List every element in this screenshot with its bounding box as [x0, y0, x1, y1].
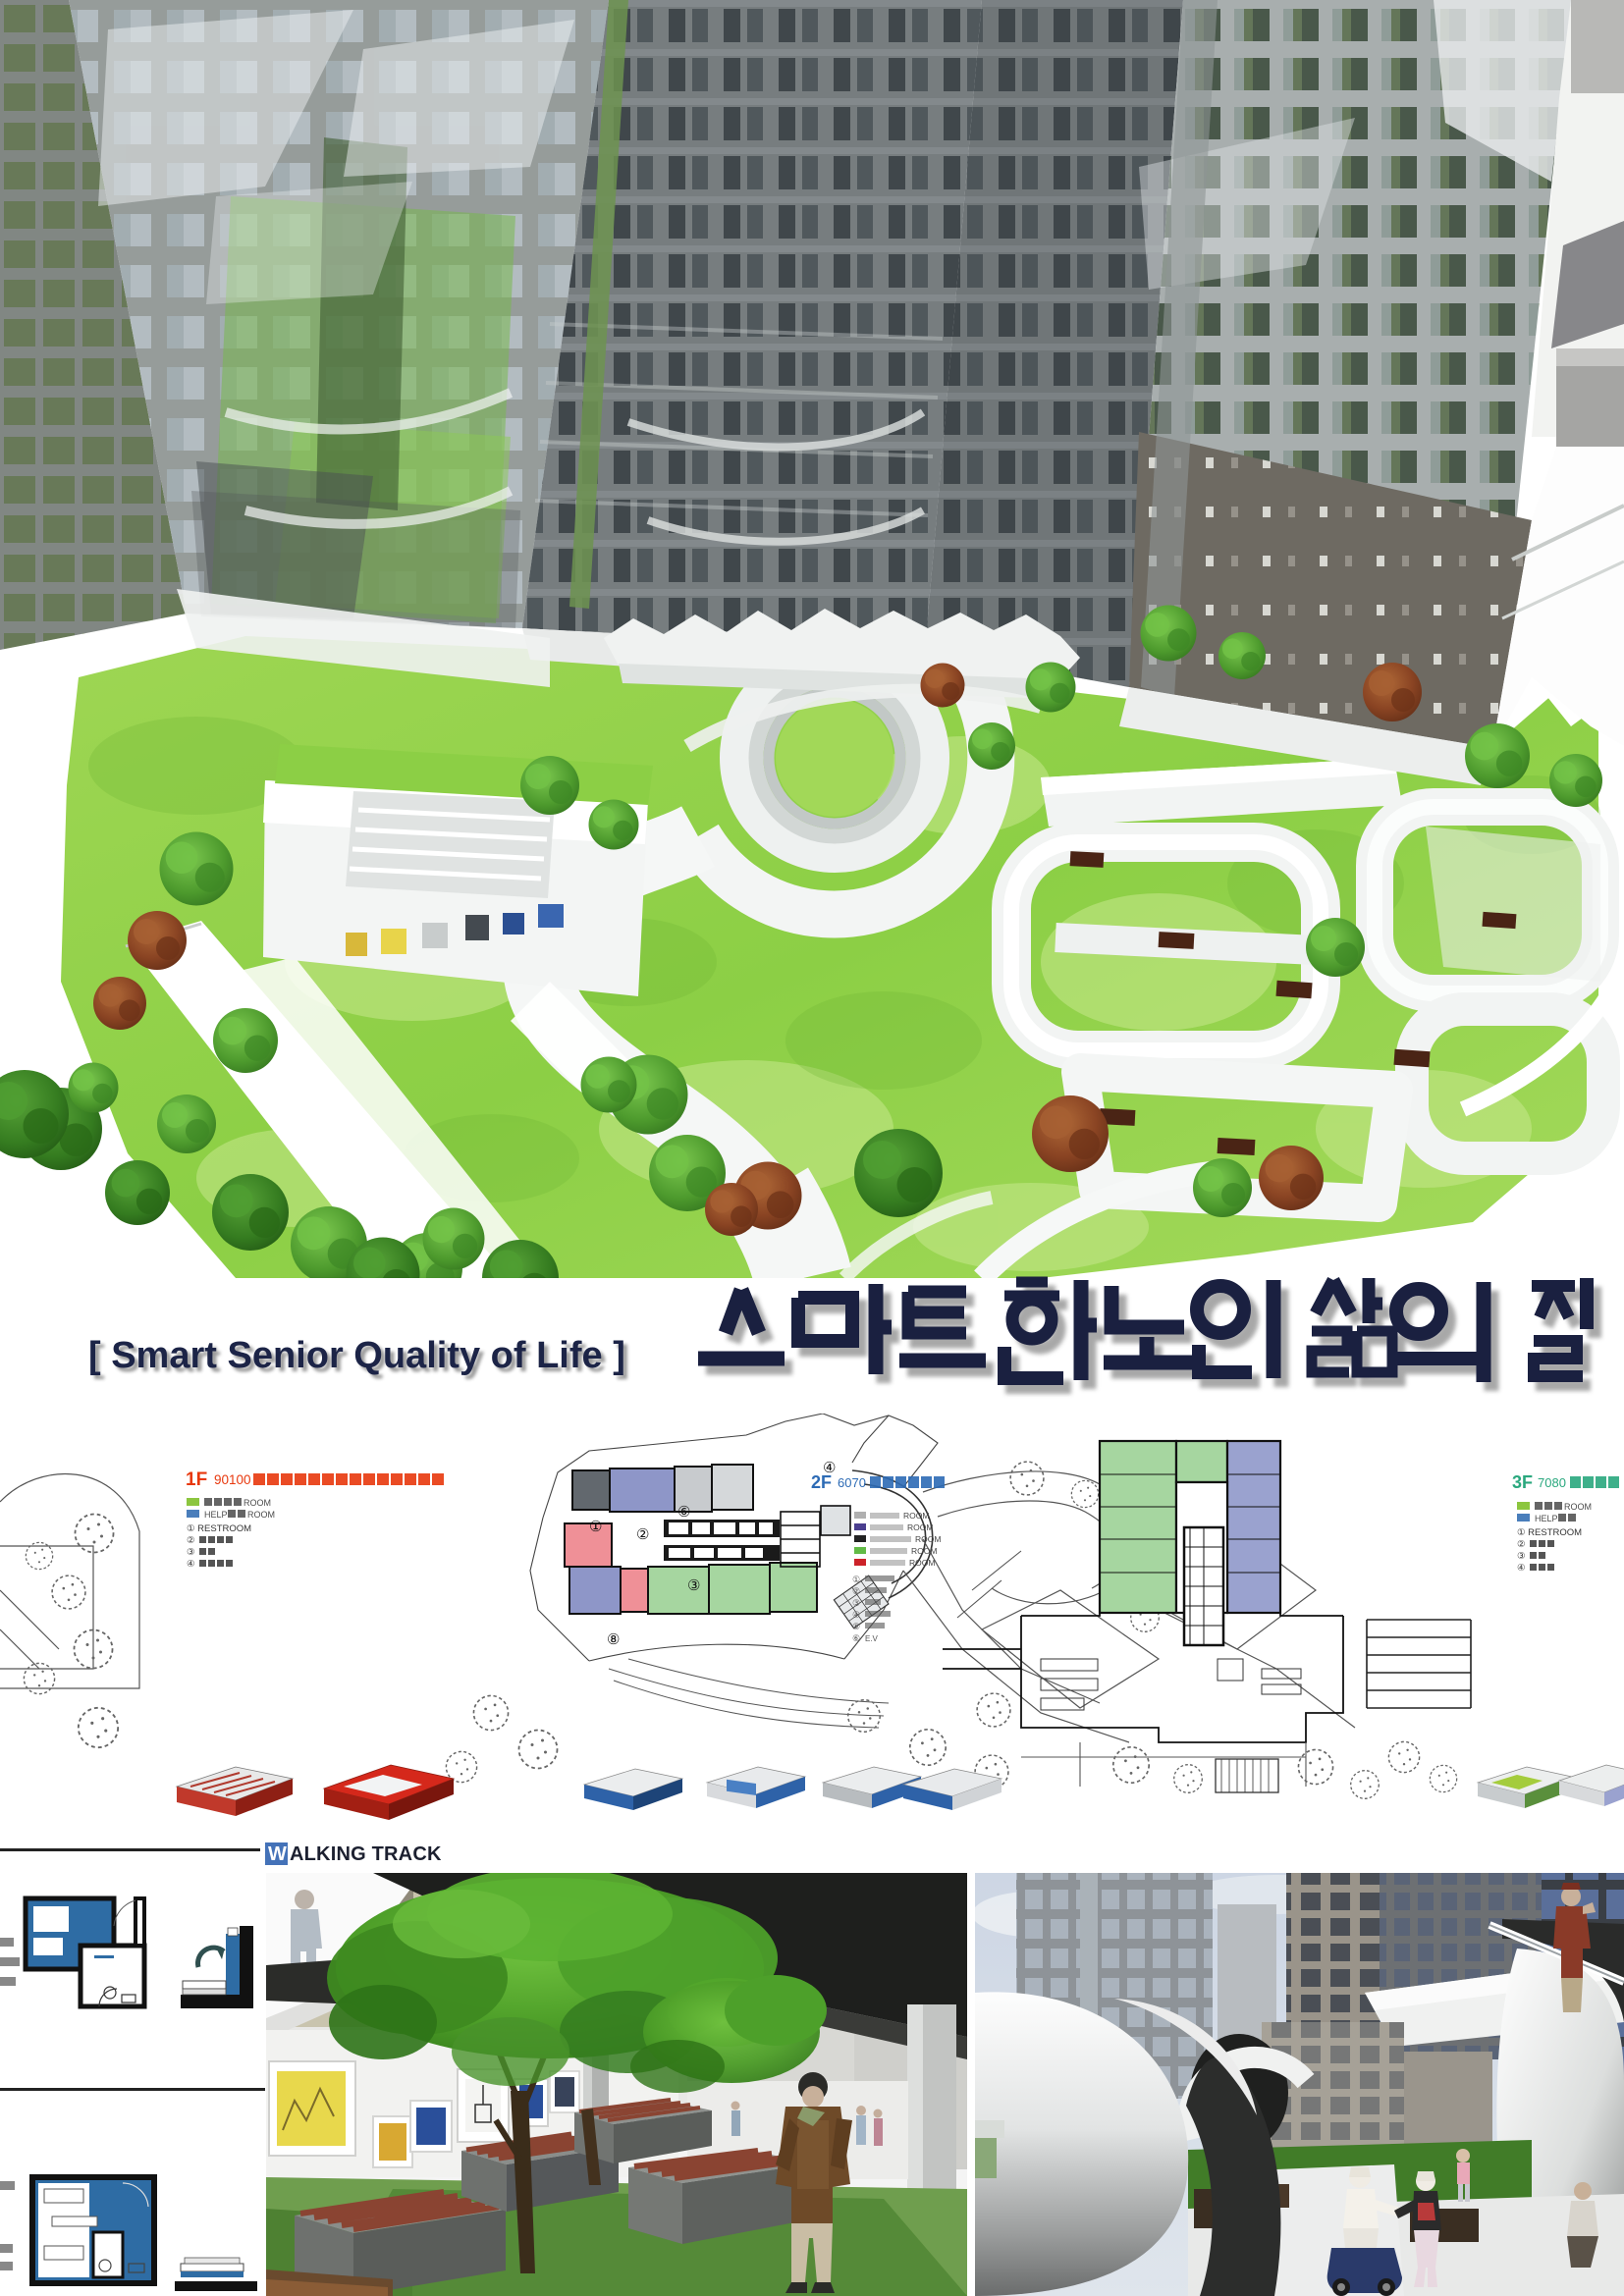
svg-text:① RESTROOM: ① RESTROOM — [1517, 1527, 1582, 1538]
svg-text:6070: 6070 — [838, 1475, 866, 1490]
svg-text:HELP: HELP — [1535, 1514, 1558, 1523]
svg-text:⑤: ⑤ — [852, 1622, 860, 1631]
svg-text:③: ③ — [852, 1598, 860, 1608]
svg-text:③: ③ — [187, 1547, 195, 1558]
svg-text:3F: 3F — [1512, 1472, 1533, 1492]
svg-text:①: ① — [852, 1575, 860, 1584]
svg-text:HELP: HELP — [204, 1510, 228, 1520]
svg-text:ALKING TRACK: ALKING TRACK — [290, 1843, 442, 1865]
svg-text:ROOM: ROOM — [244, 1498, 271, 1508]
svg-text:⑧: ⑧ — [607, 1631, 620, 1648]
svg-text:④: ④ — [1517, 1563, 1526, 1574]
svg-text:②: ② — [636, 1526, 649, 1543]
svg-text:7080: 7080 — [1538, 1475, 1566, 1490]
svg-text:②: ② — [852, 1586, 860, 1596]
svg-text:ROOM: ROOM — [903, 1511, 929, 1521]
svg-text:ROOM: ROOM — [1564, 1502, 1592, 1512]
svg-text:W: W — [268, 1843, 287, 1865]
svg-text:③: ③ — [1517, 1551, 1526, 1562]
svg-text:ROOM: ROOM — [907, 1522, 933, 1532]
svg-text:①: ① — [589, 1519, 602, 1535]
svg-text:③: ③ — [687, 1577, 700, 1594]
svg-text:⑥: ⑥ — [852, 1633, 860, 1643]
svg-text:ROOM: ROOM — [911, 1546, 937, 1556]
svg-text:ROOM: ROOM — [247, 1510, 275, 1520]
svg-text:②: ② — [1517, 1539, 1526, 1550]
svg-text:1F: 1F — [186, 1469, 207, 1490]
svg-text:②: ② — [187, 1535, 195, 1546]
svg-text:① RESTROOM: ① RESTROOM — [187, 1523, 251, 1534]
svg-text:2F: 2F — [811, 1472, 832, 1492]
svg-text:ROOM: ROOM — [909, 1558, 935, 1568]
svg-text:④: ④ — [187, 1559, 195, 1570]
svg-text:④: ④ — [852, 1610, 860, 1620]
svg-text:ROOM: ROOM — [915, 1534, 941, 1544]
svg-text:E.V: E.V — [865, 1634, 879, 1643]
svg-text:⑥: ⑥ — [677, 1504, 690, 1521]
svg-text:90100: 90100 — [214, 1472, 251, 1487]
